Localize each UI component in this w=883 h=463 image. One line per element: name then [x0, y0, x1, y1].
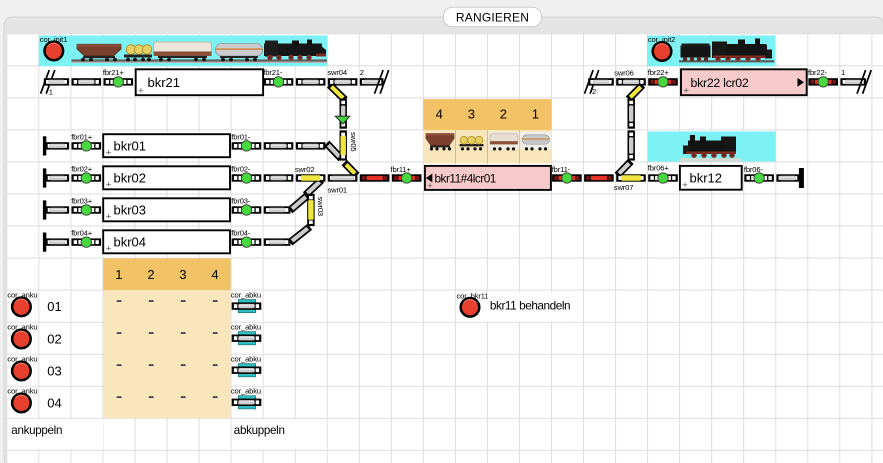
- svg-text:swr04: swr04: [327, 68, 347, 77]
- svg-text:1: 1: [532, 107, 539, 122]
- svg-text:ankuppeln: ankuppeln: [11, 424, 62, 437]
- svg-text:02: 02: [47, 331, 61, 346]
- svg-text:2: 2: [360, 68, 364, 77]
- svg-text:+: +: [106, 244, 112, 255]
- svg-text:fbr01-: fbr01-: [231, 132, 251, 141]
- svg-text:abkuppeln: abkuppeln: [234, 424, 285, 437]
- svg-text:bkr11#4lcr01: bkr11#4lcr01: [435, 172, 496, 186]
- svg-text:swr03: swr03: [316, 197, 325, 217]
- svg-text:+: +: [106, 180, 112, 191]
- svg-text:fbr22-: fbr22-: [808, 68, 828, 77]
- svg-text:swr01: swr01: [328, 186, 348, 195]
- svg-text:1: 1: [49, 87, 53, 96]
- svg-text:swr06: swr06: [614, 69, 634, 78]
- svg-text:bkr01: bkr01: [114, 139, 147, 154]
- svg-text:bkr11 behandeln: bkr11 behandeln: [490, 299, 570, 313]
- svg-text:+: +: [427, 180, 433, 191]
- svg-text:RANGIEREN: RANGIEREN: [456, 11, 529, 25]
- svg-text:fbr02-: fbr02-: [231, 164, 251, 173]
- svg-text:bkr12: bkr12: [690, 171, 723, 186]
- svg-text:fbr21+: fbr21+: [103, 68, 125, 77]
- svg-text:4: 4: [211, 267, 218, 282]
- svg-text:+: +: [138, 85, 144, 96]
- svg-text:01: 01: [47, 299, 61, 314]
- svg-text:swr07: swr07: [614, 183, 634, 192]
- svg-text:2: 2: [500, 107, 507, 122]
- svg-text:04: 04: [47, 395, 61, 410]
- svg-text:fbr03+: fbr03+: [71, 196, 93, 205]
- svg-text:fbr03-: fbr03-: [231, 196, 251, 205]
- svg-text:swr05: swr05: [349, 132, 358, 152]
- svg-text:fbr21-: fbr21-: [263, 68, 283, 77]
- svg-text:+: +: [106, 147, 112, 158]
- svg-text:4: 4: [436, 107, 443, 122]
- svg-text:fbr02+: fbr02+: [71, 164, 93, 173]
- svg-text:03: 03: [47, 363, 61, 378]
- svg-text:fbr01+: fbr01+: [71, 132, 93, 141]
- svg-text:bkr02: bkr02: [114, 171, 147, 186]
- svg-text:1: 1: [841, 68, 845, 77]
- svg-text:cor_abku: cor_abku: [231, 354, 261, 363]
- svg-text:1: 1: [115, 267, 122, 282]
- svg-text:cor_abku: cor_abku: [231, 322, 261, 331]
- svg-text:2: 2: [147, 267, 154, 282]
- svg-text:bkr22 lcr02: bkr22 lcr02: [691, 76, 749, 90]
- svg-text:+: +: [682, 180, 688, 191]
- svg-text:fbr04+: fbr04+: [71, 228, 93, 237]
- svg-text:cor_abku: cor_abku: [231, 290, 261, 299]
- svg-text:+: +: [683, 86, 689, 97]
- svg-text:3: 3: [179, 267, 186, 282]
- svg-text:+: +: [106, 212, 112, 223]
- svg-text:bkr21: bkr21: [148, 75, 181, 90]
- svg-text:fbr22+: fbr22+: [648, 68, 670, 77]
- svg-text:bkr04: bkr04: [114, 235, 147, 250]
- svg-text:cor_abku: cor_abku: [231, 386, 261, 395]
- svg-text:swr02: swr02: [295, 165, 315, 174]
- svg-text:3: 3: [468, 107, 475, 122]
- svg-text:2: 2: [592, 87, 596, 96]
- svg-text:bkr03: bkr03: [114, 203, 147, 218]
- svg-text:fbr04-: fbr04-: [231, 228, 251, 237]
- svg-text:fbr06+: fbr06+: [648, 164, 670, 173]
